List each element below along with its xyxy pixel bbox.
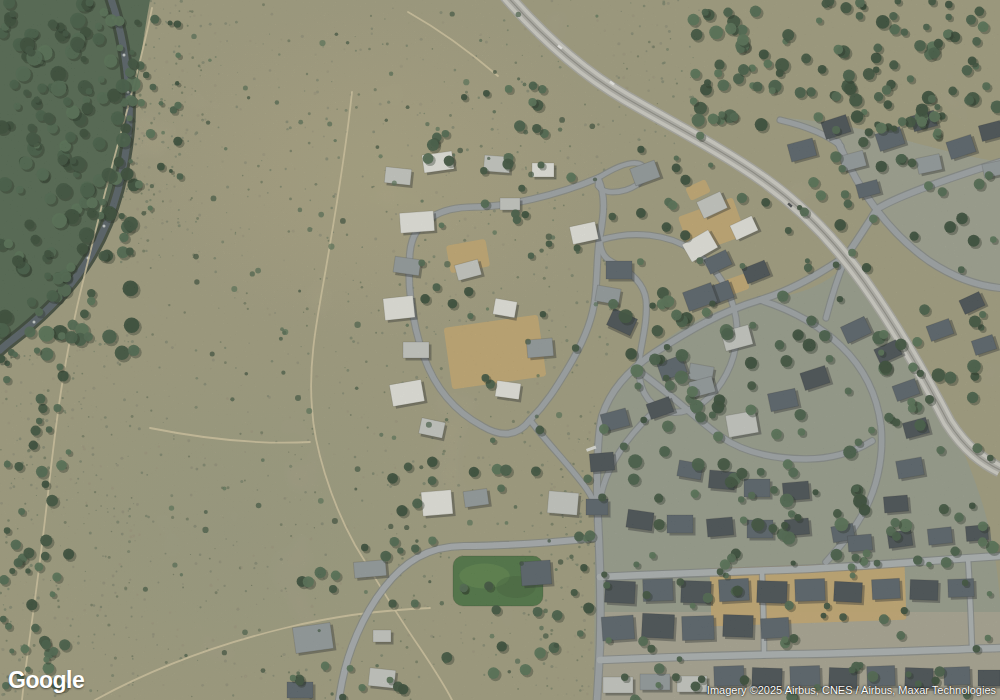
satellite-map[interactable] bbox=[0, 0, 1000, 700]
attribution-text: Imagery ©2025 Airbus, CNES / Airbus, Max… bbox=[707, 684, 996, 696]
grain-overlay-light bbox=[0, 0, 1000, 700]
google-logo[interactable]: Google bbox=[8, 667, 84, 694]
map-viewport: Google Imagery ©2025 Airbus, CNES / Airb… bbox=[0, 0, 1000, 700]
